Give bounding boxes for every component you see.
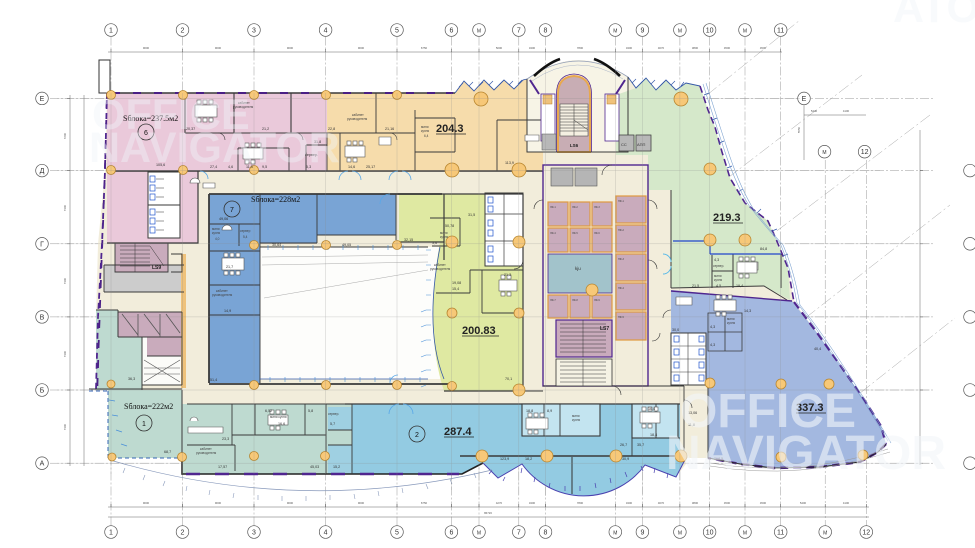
svg-text:kju: kju	[575, 266, 581, 271]
svg-text:36,3: 36,3	[128, 377, 135, 381]
svg-text:3400: 3400	[626, 501, 633, 505]
svg-text:9000: 9000	[143, 501, 150, 505]
svg-text:ПФ-2: ПФ-2	[618, 229, 625, 232]
svg-text:31,5: 31,5	[468, 213, 475, 217]
svg-text:LS7: LS7	[600, 326, 609, 332]
svg-text:3: 3	[252, 530, 256, 537]
svg-text:70,1: 70,1	[505, 377, 512, 381]
svg-text:Г: Г	[40, 241, 44, 248]
svg-text:68,7: 68,7	[164, 450, 171, 454]
svg-text:кухня: кухня	[421, 129, 429, 133]
svg-text:3400: 3400	[529, 501, 536, 505]
svg-text:Sблока=228м2: Sблока=228м2	[251, 195, 300, 204]
svg-text:М: М	[613, 531, 617, 537]
svg-text:12: 12	[862, 530, 870, 537]
svg-text:6: 6	[449, 530, 453, 537]
svg-text:7300: 7300	[63, 350, 67, 357]
svg-text:3400: 3400	[626, 46, 633, 50]
svg-text:АПП: АПП	[637, 142, 645, 147]
svg-text:21,3: 21,3	[504, 273, 511, 277]
svg-text:7800: 7800	[577, 46, 584, 50]
svg-text:4: 4	[324, 28, 328, 35]
svg-text:9: 9	[640, 28, 644, 35]
svg-text:7300: 7300	[63, 277, 67, 284]
svg-text:кухня: кухня	[727, 321, 735, 325]
svg-text:7200: 7200	[63, 132, 67, 139]
svg-text:17,57: 17,57	[218, 465, 227, 469]
svg-text:9000: 9000	[215, 46, 222, 50]
svg-text:М: М	[678, 29, 682, 35]
svg-text:21,16: 21,16	[385, 127, 394, 131]
svg-text:9000: 9000	[287, 501, 294, 505]
svg-text:4500: 4500	[724, 46, 731, 50]
svg-text:В: В	[40, 314, 45, 321]
svg-text:4,0: 4,0	[215, 237, 220, 241]
svg-text:30,0: 30,0	[672, 328, 679, 332]
svg-text:4500: 4500	[724, 501, 731, 505]
svg-text:кухня: кухня	[212, 231, 220, 235]
svg-text:3,6: 3,6	[432, 241, 437, 245]
svg-text:М: М	[823, 531, 827, 537]
svg-text:руководителя: руководителя	[212, 293, 232, 297]
svg-text:200.83: 200.83	[462, 325, 496, 337]
svg-text:5: 5	[395, 530, 399, 537]
svg-text:5,4: 5,4	[243, 235, 248, 239]
svg-text:LS9: LS9	[152, 265, 161, 271]
svg-text:LS6: LS6	[570, 143, 579, 148]
svg-text:ПФ-4: ПФ-4	[618, 287, 625, 290]
svg-text:М: М	[743, 29, 747, 35]
svg-text:26,7: 26,7	[620, 443, 627, 447]
svg-text:8: 8	[544, 28, 548, 35]
svg-text:21,7: 21,7	[226, 265, 233, 269]
svg-text:мини кухня: мини кухня	[270, 415, 287, 419]
svg-text:кухня: кухня	[572, 418, 580, 422]
svg-text:ЛФ-2: ЛФ-2	[572, 206, 578, 209]
svg-text:86726: 86726	[484, 511, 492, 515]
svg-text:1: 1	[109, 28, 113, 35]
svg-text:5,8: 5,8	[308, 409, 313, 413]
svg-text:4: 4	[324, 530, 328, 537]
svg-text:4100: 4100	[843, 501, 850, 505]
svg-text:19,08: 19,08	[452, 281, 461, 285]
svg-text:8,9: 8,9	[547, 409, 552, 413]
svg-text:10: 10	[706, 28, 714, 35]
svg-text:12: 12	[861, 149, 869, 156]
svg-text:7300: 7300	[63, 423, 67, 430]
svg-text:6750: 6750	[421, 46, 428, 50]
svg-text:40,4: 40,4	[814, 347, 821, 351]
svg-text:2: 2	[415, 432, 419, 439]
svg-text:14,3: 14,3	[744, 309, 751, 313]
svg-text:49,05: 49,05	[342, 243, 351, 247]
svg-text:ПФ-5: ПФ-5	[618, 316, 625, 319]
svg-text:2: 2	[181, 28, 185, 35]
svg-text:М: М	[822, 150, 826, 156]
svg-text:Е: Е	[40, 96, 45, 103]
svg-text:сервер: сервер	[240, 229, 251, 233]
svg-text:5,7: 5,7	[330, 422, 335, 426]
svg-text:14,6: 14,6	[348, 165, 355, 169]
svg-text:7: 7	[517, 28, 521, 35]
svg-text:5000: 5000	[496, 46, 503, 50]
svg-text:11: 11	[777, 28, 784, 35]
svg-text:18,4: 18,4	[650, 433, 657, 437]
svg-text:21,5: 21,5	[692, 284, 699, 288]
svg-text:ЛФ-5: ЛФ-5	[572, 232, 578, 235]
svg-text:4100: 4100	[843, 109, 850, 113]
svg-text:10: 10	[706, 530, 714, 537]
svg-text:5400: 5400	[800, 501, 807, 505]
svg-text:А: А	[40, 461, 45, 468]
svg-text:1: 1	[109, 530, 113, 537]
svg-text:9000: 9000	[358, 46, 365, 50]
svg-text:123,9: 123,9	[500, 457, 509, 461]
svg-text:6: 6	[449, 28, 453, 35]
svg-text:45,03: 45,03	[310, 465, 319, 469]
svg-text:23,3: 23,3	[222, 437, 229, 441]
svg-text:сервер.: сервер.	[328, 412, 339, 416]
svg-text:ЛФ-7: ЛФ-7	[550, 299, 556, 302]
svg-text:4670: 4670	[658, 46, 665, 50]
svg-text:4,3: 4,3	[710, 325, 715, 329]
svg-text:ЛФ-9: ЛФ-9	[594, 299, 600, 302]
svg-text:ЛФ-8: ЛФ-8	[572, 299, 578, 302]
svg-text:ЛФ-4: ЛФ-4	[550, 232, 556, 235]
svg-text:ЛФ-1: ЛФ-1	[550, 206, 556, 209]
svg-text:9: 9	[640, 530, 644, 537]
svg-text:18,8: 18,8	[526, 409, 533, 413]
svg-text:4,3: 4,3	[710, 343, 715, 347]
svg-text:14,9: 14,9	[224, 309, 231, 313]
svg-text:18,2: 18,2	[525, 457, 532, 461]
svg-text:М: М	[477, 29, 481, 35]
svg-text:2: 2	[181, 530, 185, 537]
svg-text:М: М	[613, 29, 617, 35]
svg-text:49,06: 49,06	[219, 217, 228, 221]
svg-text:8: 8	[544, 530, 548, 537]
svg-text:кухня: кухня	[440, 235, 448, 239]
svg-text:ЛФ-6: ЛФ-6	[594, 232, 600, 235]
svg-text:5: 5	[395, 28, 399, 35]
svg-text:84,8: 84,8	[760, 247, 767, 251]
svg-text:М: М	[678, 531, 682, 537]
svg-text:3800: 3800	[692, 501, 699, 505]
svg-text:7: 7	[517, 530, 521, 537]
svg-text:16,4: 16,4	[648, 407, 655, 411]
svg-text:50,78: 50,78	[445, 224, 454, 228]
svg-text:NAVIGATOR: NAVIGATOR	[666, 427, 946, 480]
svg-text:4270: 4270	[496, 501, 503, 505]
svg-text:30,64: 30,64	[272, 243, 281, 247]
svg-text:СС: СС	[621, 142, 627, 147]
svg-text:15,2: 15,2	[333, 465, 340, 469]
svg-text:51,4: 51,4	[210, 378, 217, 382]
svg-text:руководителя: руководителя	[347, 117, 367, 121]
svg-text:4500: 4500	[760, 501, 767, 505]
svg-text:35,7: 35,7	[637, 443, 644, 447]
svg-text:19,4: 19,4	[736, 284, 743, 288]
svg-text:9000: 9000	[358, 501, 365, 505]
svg-text:NAVIGATOR: NAVIGATOR	[89, 124, 340, 172]
svg-text:ЛФ-3: ЛФ-3	[594, 206, 600, 209]
svg-text:7800: 7800	[577, 501, 584, 505]
svg-text:3800: 3800	[692, 46, 699, 50]
svg-text:М: М	[477, 531, 481, 537]
svg-text:9000: 9000	[287, 46, 294, 50]
svg-text:6,4: 6,4	[424, 134, 429, 138]
svg-text:Б: Б	[40, 388, 45, 395]
svg-text:сервер.: сервер.	[713, 264, 724, 268]
svg-text:4,5: 4,5	[716, 284, 721, 288]
svg-text:М: М	[743, 531, 747, 537]
svg-text:32,15: 32,15	[404, 238, 413, 242]
svg-text:4,3: 4,3	[714, 258, 719, 262]
svg-text:руководителя: руководителя	[196, 451, 216, 455]
svg-text:6750: 6750	[421, 501, 428, 505]
svg-text:Sблока=222м2: Sблока=222м2	[124, 402, 173, 411]
svg-text:25,17: 25,17	[366, 165, 375, 169]
svg-text:4670: 4670	[658, 501, 665, 505]
svg-text:ПФ-1: ПФ-1	[618, 200, 625, 203]
svg-text:5550: 5550	[797, 126, 801, 133]
svg-text:3: 3	[252, 28, 256, 35]
svg-text:5440: 5440	[811, 109, 818, 113]
svg-text:руководителя: руководителя	[430, 267, 450, 271]
svg-text:204.3: 204.3	[436, 123, 464, 135]
svg-text:16,6: 16,6	[278, 422, 285, 426]
svg-text:219.3: 219.3	[713, 212, 741, 224]
svg-text:6,52: 6,52	[265, 409, 272, 413]
svg-text:1: 1	[142, 421, 146, 428]
svg-text:кухня: кухня	[714, 278, 722, 282]
svg-text:30,9: 30,9	[622, 457, 629, 461]
svg-text:ATOR: ATOR	[893, 0, 975, 32]
svg-text:9000: 9000	[143, 46, 150, 50]
svg-text:4500: 4500	[760, 46, 767, 50]
svg-text:Д: Д	[40, 168, 45, 175]
svg-text:113,9: 113,9	[505, 161, 514, 165]
svg-text:ПФ-3: ПФ-3	[618, 258, 625, 261]
svg-text:287.4: 287.4	[444, 426, 472, 438]
svg-text:Е: Е	[802, 96, 807, 103]
svg-text:11: 11	[777, 530, 784, 537]
svg-text:9000: 9000	[215, 501, 222, 505]
svg-text:7300: 7300	[63, 204, 67, 211]
svg-text:7: 7	[230, 207, 234, 214]
svg-text:15,4: 15,4	[452, 287, 459, 291]
svg-text:3400: 3400	[529, 46, 536, 50]
